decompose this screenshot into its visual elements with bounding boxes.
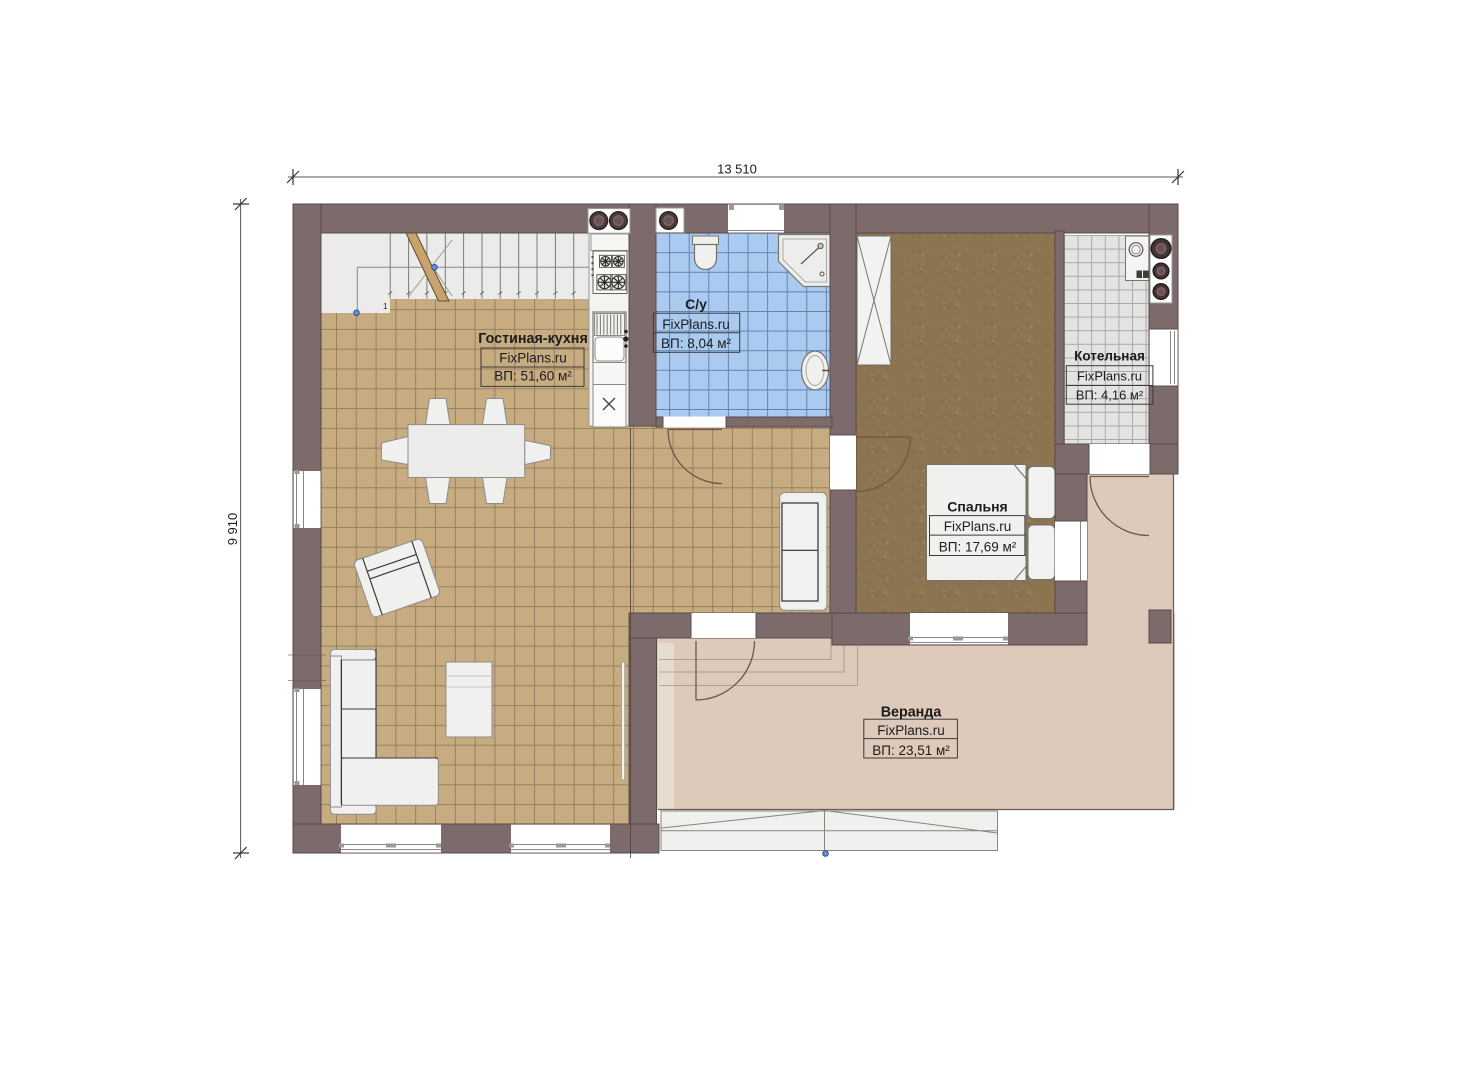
svg-text:FixPlans.ru: FixPlans.ru [1077, 369, 1142, 384]
svg-text:13 510: 13 510 [717, 162, 757, 177]
svg-text:FixPlans.ru: FixPlans.ru [499, 351, 567, 366]
svg-text:Спальня: Спальня [947, 498, 1007, 514]
svg-text:ВП: 4,16 м²: ВП: 4,16 м² [1076, 388, 1144, 403]
svg-text:ВП: 8,04 м²: ВП: 8,04 м² [661, 336, 732, 351]
svg-text:FixPlans.ru: FixPlans.ru [944, 519, 1012, 534]
svg-text:9 910: 9 910 [225, 513, 240, 546]
svg-text:ВП: 51,60 м²: ВП: 51,60 м² [494, 369, 572, 384]
svg-text:Котельная: Котельная [1074, 349, 1145, 364]
svg-text:FixPlans.ru: FixPlans.ru [877, 723, 945, 738]
svg-text:Веранда: Веранда [881, 705, 943, 721]
svg-text:ВП: 23,51 м²: ВП: 23,51 м² [872, 743, 950, 758]
svg-text:1: 1 [383, 302, 388, 311]
svg-text:FixPlans.ru: FixPlans.ru [662, 317, 730, 332]
svg-text:С/у: С/у [685, 296, 707, 312]
svg-text:Гостиная-кухня: Гостиная-кухня [478, 331, 588, 347]
svg-text:ВП: 17,69 м²: ВП: 17,69 м² [939, 539, 1017, 554]
